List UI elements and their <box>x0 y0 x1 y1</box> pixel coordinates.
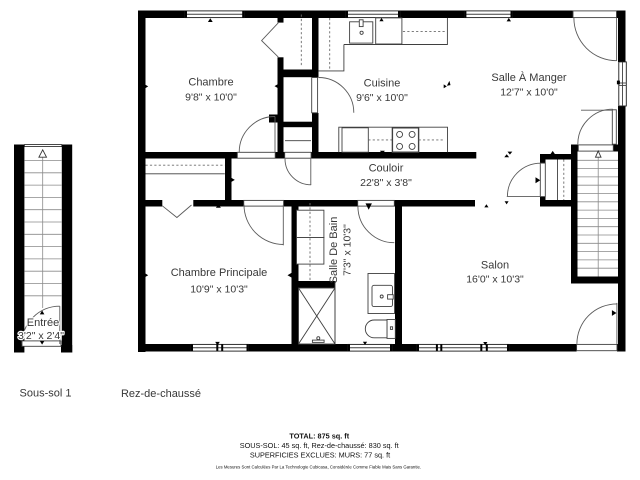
svg-text:TOTAL: 875 sq. ft: TOTAL: 875 sq. ft <box>289 432 349 441</box>
svg-text:10'9" x 10'3": 10'9" x 10'3" <box>190 284 248 296</box>
svg-text:SUPERFICIES EXCLUES: MURS: 77: SUPERFICIES EXCLUES: MURS: 77 sq. ft <box>250 450 390 459</box>
svg-text:Salle À Manger: Salle À Manger <box>491 71 567 84</box>
svg-text:7'3" x 10'3": 7'3" x 10'3" <box>342 224 354 276</box>
svg-text:3'2" x 2'4": 3'2" x 2'4" <box>18 330 64 342</box>
svg-text:Chambre Principale: Chambre Principale <box>171 267 268 279</box>
svg-text:Chambre: Chambre <box>188 77 233 89</box>
svg-text:22'8" x 3'8": 22'8" x 3'8" <box>360 177 412 189</box>
svg-text:Couloir: Couloir <box>369 163 404 175</box>
svg-text:Salon: Salon <box>481 260 509 272</box>
svg-text:16'0" x 10'3": 16'0" x 10'3" <box>466 274 524 286</box>
svg-text:Sous-sol 1: Sous-sol 1 <box>20 388 72 400</box>
svg-text:Entrée: Entrée <box>27 317 59 329</box>
svg-text:Salle De Bain: Salle De Bain <box>328 217 340 284</box>
svg-text:Rez-de-chaussé: Rez-de-chaussé <box>121 388 201 400</box>
svg-text:SOUS-SOL: 45 sq. ft, Rez-de-ch: SOUS-SOL: 45 sq. ft, Rez-de-chaussé: 830… <box>240 441 399 450</box>
svg-text:9'8" x 10'0": 9'8" x 10'0" <box>185 92 237 104</box>
svg-text:Cuisine: Cuisine <box>364 78 401 90</box>
svg-text:9'6" x 10'0": 9'6" x 10'0" <box>356 92 408 104</box>
svg-text:Les Mesures Sont Calculées Par: Les Mesures Sont Calculées Par La Techno… <box>216 465 421 470</box>
svg-text:12'7" x 10'0": 12'7" x 10'0" <box>500 87 558 99</box>
